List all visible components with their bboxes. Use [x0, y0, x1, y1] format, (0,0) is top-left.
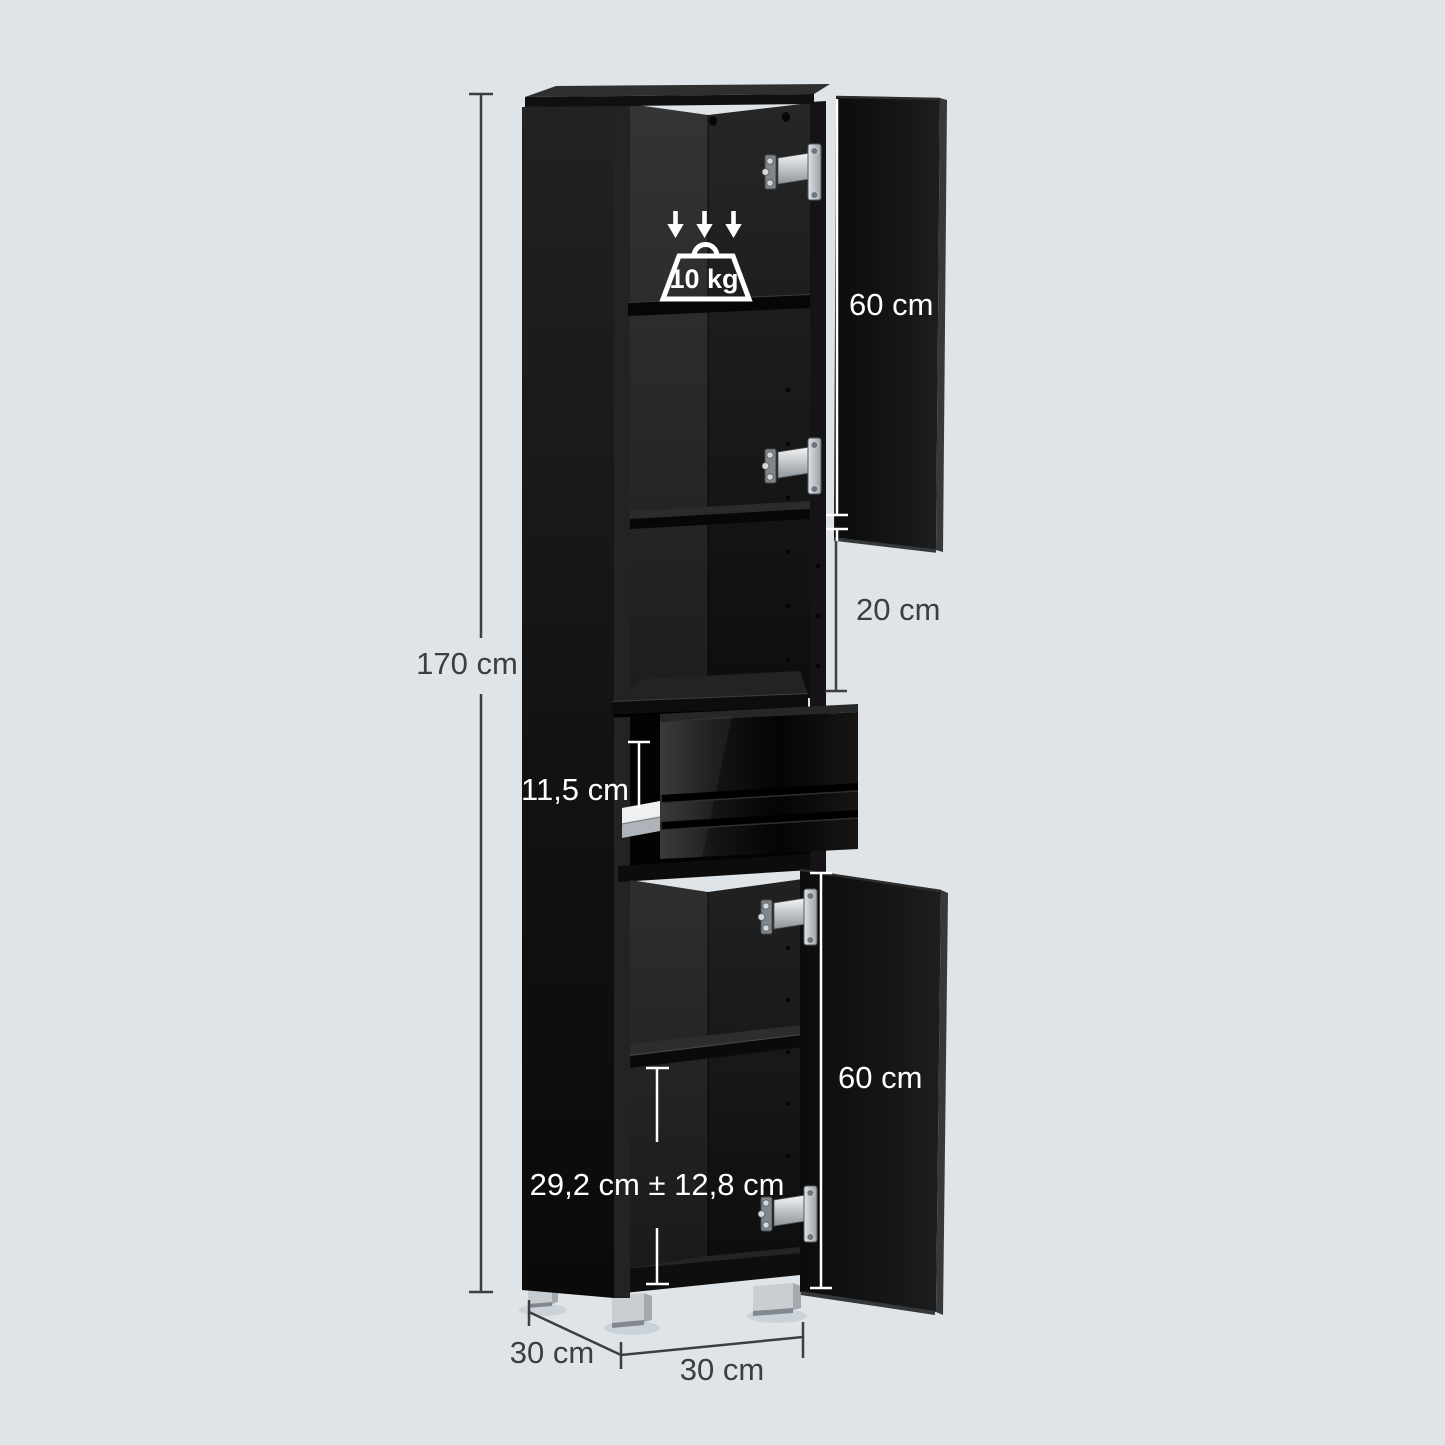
dim-upper-door-label: 60 cm [849, 287, 933, 322]
upper-interior-side [630, 104, 708, 712]
max-load-label: 10 kg [669, 264, 738, 294]
dim-total-height-label: 170 cm [416, 646, 518, 681]
dim-open-compartment-label: 20 cm [856, 592, 940, 627]
lower-interior-side [630, 880, 708, 1268]
cabinet-left-panel [522, 105, 614, 1298]
upper-door[interactable] [834, 96, 947, 552]
dim-drawer-label: 11,5 cm [521, 772, 629, 807]
dim-adjustable-shelf-label: 29,2 cm ± 12,8 cm [530, 1167, 785, 1202]
diagram-canvas: 10 kg 170 cm 60 cm 20 cm 11,5 cm 60 cm [0, 0, 1445, 1445]
dim-width-label: 30 cm [680, 1352, 764, 1387]
upper-interior-back [708, 103, 810, 704]
dim-lower-door-label: 60 cm [838, 1060, 922, 1095]
product-dimension-diagram: 10 kg 170 cm 60 cm 20 cm 11,5 cm 60 cm [0, 0, 1445, 1445]
dim-depth-label: 30 cm [510, 1335, 594, 1370]
